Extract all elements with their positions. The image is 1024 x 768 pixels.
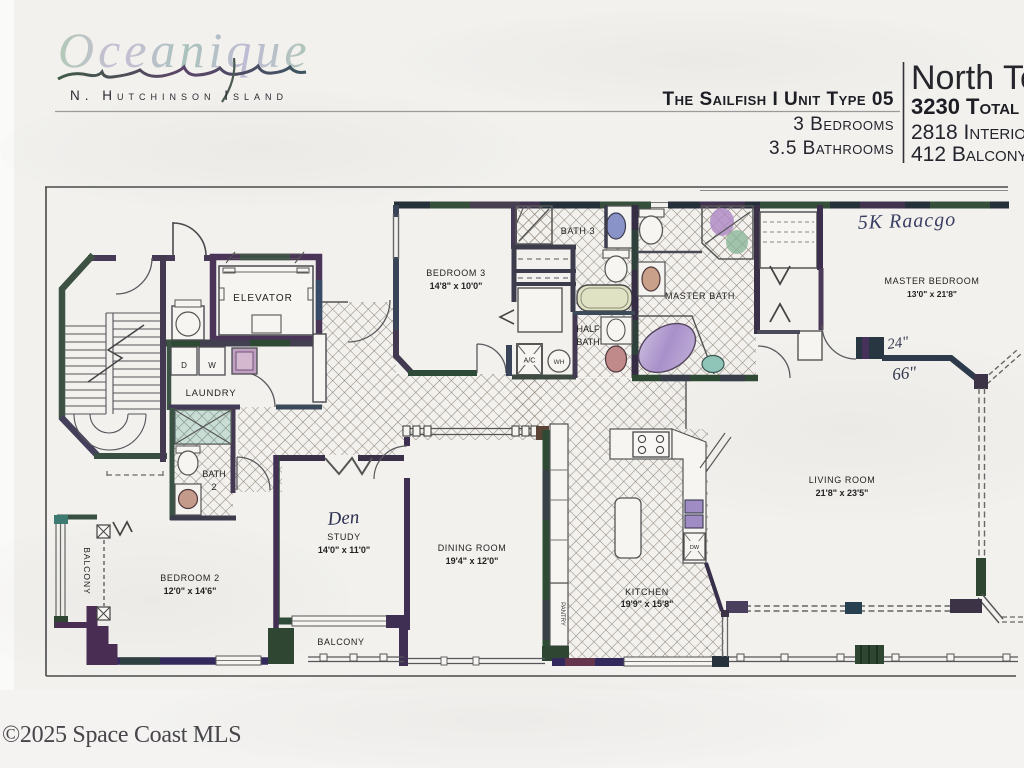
svg-text:The Sailfish I Unit Type 05: The Sailfish I Unit Type 05 [663,89,894,110]
svg-text:W: W [208,361,216,370]
svg-text:412 Balcony: 412 Balcony [911,143,1024,166]
svg-text:21'8" x 23'5": 21'8" x 23'5" [816,488,869,498]
svg-text:LIVING ROOM: LIVING ROOM [809,475,876,485]
svg-text:HALF: HALF [576,324,600,334]
svg-text:ELEVATOR: ELEVATOR [233,293,293,304]
svg-text:19'9" x 15'8": 19'9" x 15'8" [621,599,674,609]
svg-text:12'0" x 14'6": 12'0" x 14'6" [164,586,217,596]
svg-text:5K Raacgo: 5K Raacgo [857,208,956,233]
svg-text:3.5 Bathrooms: 3.5 Bathrooms [769,138,894,159]
svg-text:Den: Den [326,507,360,530]
svg-text:LAUNDRY: LAUNDRY [186,388,237,399]
svg-text:A/C: A/C [524,358,536,365]
svg-text:2818 Interior: 2818 Interior [911,121,1024,144]
svg-text:N. Hutchinson Island: N. Hutchinson Island [70,88,288,103]
svg-text:BATH: BATH [202,469,225,479]
svg-text:3 Bedrooms: 3 Bedrooms [793,114,894,135]
svg-text:©2025 Space Coast MLS: ©2025 Space Coast MLS [2,722,241,748]
svg-text:STUDY: STUDY [327,532,361,542]
svg-text:BEDROOM 3: BEDROOM 3 [426,268,485,278]
svg-text:BATH 3: BATH 3 [561,226,595,236]
svg-text:BATH: BATH [576,337,599,347]
svg-text:19'4" x 12'0": 19'4" x 12'0" [446,556,499,566]
svg-text:DW: DW [690,545,700,551]
svg-text:13'0" x 21'8": 13'0" x 21'8" [907,289,957,299]
svg-text:KITCHEN: KITCHEN [625,587,669,597]
svg-text:DINING ROOM: DINING ROOM [438,543,507,553]
svg-text:WH: WH [554,359,565,366]
svg-text:BALCONY: BALCONY [317,637,364,647]
svg-text:66": 66" [891,362,918,384]
svg-text:14'8" x 10'0": 14'8" x 10'0" [430,281,483,291]
svg-text:D: D [181,361,187,370]
svg-text:North Tow: North Tow [911,59,1024,97]
svg-text:BALCONY: BALCONY [82,547,92,595]
svg-text:MASTER BATH: MASTER BATH [665,291,735,301]
svg-text:PANTRY: PANTRY [559,602,565,626]
svg-text:2: 2 [211,482,216,492]
svg-text:BEDROOM 2: BEDROOM 2 [160,573,219,583]
svg-text:14'0" x 11'0": 14'0" x 11'0" [318,545,370,555]
svg-text:MASTER BEDROOM: MASTER BEDROOM [885,276,980,286]
svg-text:3230 Total S: 3230 Total S [911,94,1024,119]
svg-text:24": 24" [886,334,910,353]
